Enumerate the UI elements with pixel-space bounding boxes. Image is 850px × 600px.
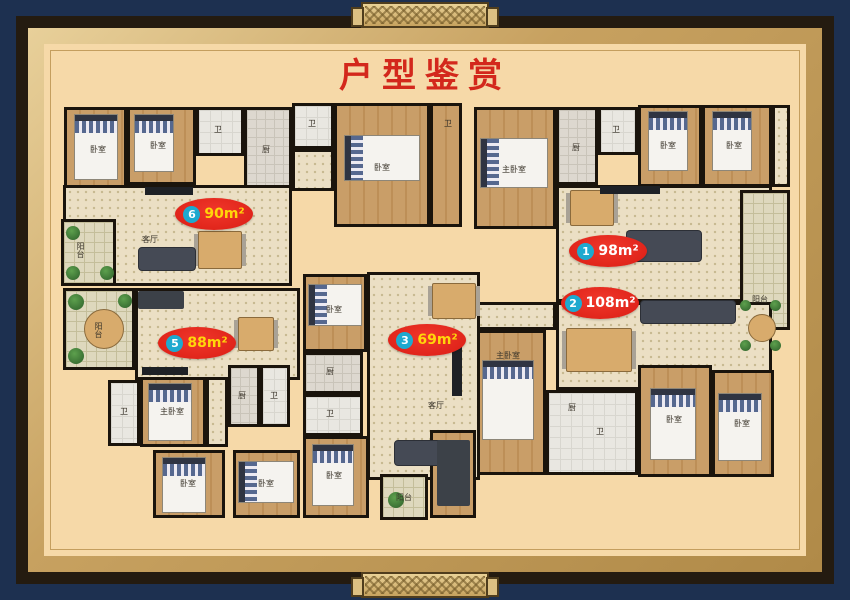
furniture-bed-h-icon [344,135,420,181]
room-u2-bath-block [546,390,638,475]
unit-number: 1 [577,243,594,260]
furniture-plant-icon [100,266,114,280]
room-label: 阳台 [396,494,412,502]
room-label: 主卧室 [502,166,526,174]
unit-number: 3 [396,332,413,349]
furniture-sofa-icon [640,300,736,324]
poster-frame: 户型鉴赏 卧室卧室卫厨阳台客厅卫卧室卫主卧室厨卫卧室卧室阳台客厅厨卫卧室卧室阳台… [0,0,850,600]
unit-number: 6 [183,206,200,223]
room-label: 卧室 [374,164,390,172]
furniture-round-icon [748,314,776,342]
furniture-tv-icon [142,367,188,375]
floor-plan: 卧室卧室卫厨阳台客厅卫卧室卫主卧室厨卫卧室卧室阳台客厅厨卫卧室卧室阳台主卧室卧室… [0,0,850,600]
furniture-desk-icon [437,440,470,506]
room-label: 阳台 [752,296,768,304]
room-label: 客厅 [428,402,444,410]
furniture-bed-v-icon [650,388,696,460]
furniture-table-icon [566,328,632,372]
room-label: 主卧室 [496,352,520,360]
unit-badge-6: 690m² [175,198,253,230]
unit-badge-2: 2108m² [561,287,639,319]
room-label: 卧室 [258,480,274,488]
room-u2-entry [474,302,556,330]
furniture-table-icon [238,317,274,351]
room-label: 卧室 [180,480,196,488]
furniture-table-icon [570,190,614,226]
furniture-bed-h-icon [480,138,548,188]
furniture-desk-icon [138,291,184,309]
room-label: 卫 [444,120,452,128]
room-label: 卫 [214,126,222,134]
furniture-sofa-icon [138,247,196,271]
unit-badge-5: 588m² [158,327,236,359]
furniture-bed-v-icon [482,360,534,440]
room-u1-closet [772,105,790,187]
room-label: 厨 [262,146,270,154]
room-label: 厨 [326,368,334,376]
room-label: 卧室 [150,142,166,150]
room-mid-hall [292,149,334,191]
furniture-round-icon [84,309,124,349]
room-label: 卧室 [90,146,106,154]
unit-area: 88m² [187,335,227,351]
unit-number: 2 [565,295,582,312]
room-label: 卧室 [726,142,742,150]
room-label: 客厅 [142,236,158,244]
room-label: 阳台 [76,242,84,258]
unit-area: 69m² [417,332,457,348]
room-label: 厨 [568,404,576,412]
unit-area: 98m² [598,243,638,259]
room-label: 卫 [596,428,604,436]
furniture-plant-icon [66,226,80,240]
room-label: 厨 [572,144,580,152]
furniture-plant-icon [770,340,781,351]
room-label: 卫 [270,392,278,400]
room-u5-corridor [206,377,228,447]
room-label: 卧室 [660,142,676,150]
furniture-plant-icon [66,266,80,280]
furniture-plant-icon [118,294,132,308]
room-label: 卫 [120,408,128,416]
room-label: 卧室 [734,420,750,428]
room-label: 卫 [308,120,316,128]
furniture-plant-icon [740,340,751,351]
unit-area: 90m² [204,206,244,222]
room-label: 卫 [326,410,334,418]
room-label: 卧室 [326,472,342,480]
furniture-tv-icon [145,187,193,195]
room-label: 卫 [612,126,620,134]
unit-badge-3: 369m² [388,324,466,356]
unit-area: 108m² [586,295,636,311]
room-label: 阳台 [94,322,102,338]
furniture-plant-icon [68,294,84,310]
furniture-plant-icon [68,348,84,364]
room-label: 主卧室 [160,408,184,416]
room-label: 厨 [238,392,246,400]
furniture-table-icon [432,283,476,319]
unit-number: 5 [166,335,183,352]
unit-badge-1: 198m² [569,235,647,267]
furniture-tv-icon [600,186,660,194]
room-label: 卧室 [326,306,342,314]
room-label: 卧室 [666,416,682,424]
furniture-plant-icon [770,300,781,311]
furniture-table-icon [198,231,242,269]
furniture-plant-icon [740,300,751,311]
